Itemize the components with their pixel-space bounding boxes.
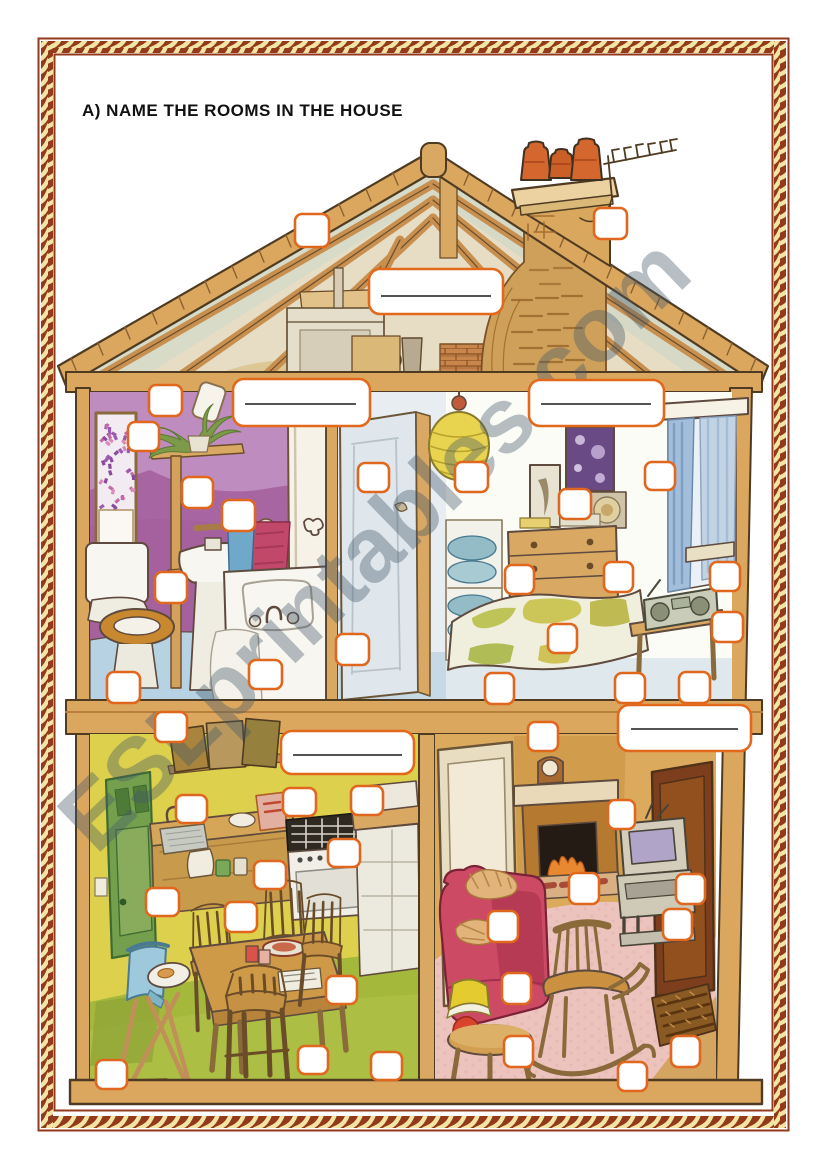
svg-text:A) NAME THE ROOMS IN THE HOUSE: A) NAME THE ROOMS IN THE HOUSE — [82, 101, 403, 120]
